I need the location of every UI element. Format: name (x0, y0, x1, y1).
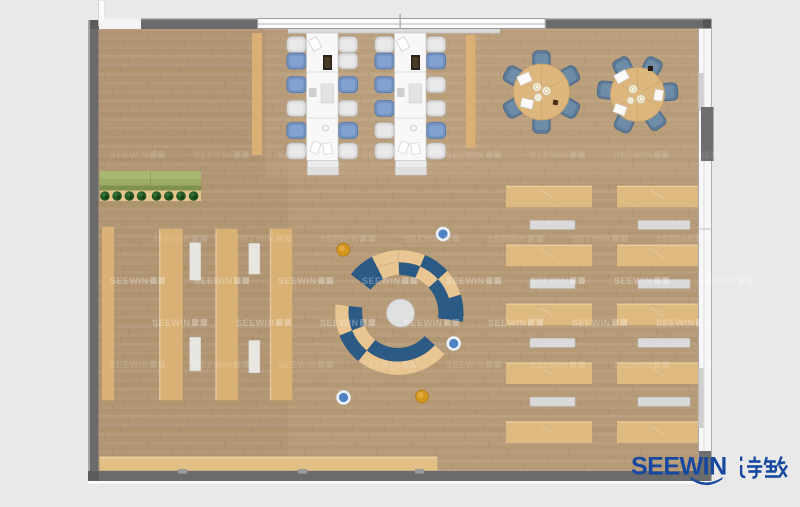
svg-text:SEEWIN: SEEWIN (110, 276, 149, 286)
svg-text:SEEWIN: SEEWIN (488, 318, 527, 328)
svg-text:SEEWIN: SEEWIN (614, 150, 653, 160)
svg-text:SEEWIN: SEEWIN (404, 318, 443, 328)
svg-text:SEEWIN: SEEWIN (698, 276, 737, 286)
svg-text:SEEWIN: SEEWIN (446, 150, 485, 160)
svg-text:SEEWIN: SEEWIN (194, 276, 233, 286)
svg-text:SEEWIN: SEEWIN (404, 234, 443, 244)
svg-text:SEEWIN: SEEWIN (530, 360, 569, 370)
svg-text:SEEWIN: SEEWIN (698, 150, 737, 160)
svg-text:SEEWIN: SEEWIN (362, 150, 401, 160)
svg-text:SEEWIN: SEEWIN (488, 234, 527, 244)
svg-text:SEEWIN: SEEWIN (572, 318, 611, 328)
svg-text:SEEWIN: SEEWIN (278, 150, 317, 160)
svg-text:SEEWIN: SEEWIN (278, 360, 317, 370)
svg-text:SEEWIN: SEEWIN (278, 276, 317, 286)
svg-text:SEEWIN: SEEWIN (530, 150, 569, 160)
svg-text:SEEWIN: SEEWIN (194, 150, 233, 160)
svg-text:SEEWIN: SEEWIN (446, 276, 485, 286)
svg-text:SEEWIN: SEEWIN (631, 453, 727, 481)
svg-text:SEEWIN: SEEWIN (698, 360, 737, 370)
svg-text:SEEWIN: SEEWIN (152, 234, 191, 244)
svg-text:SEEWIN: SEEWIN (236, 234, 275, 244)
svg-text:SEEWIN: SEEWIN (110, 150, 149, 160)
svg-text:SEEWIN: SEEWIN (656, 234, 695, 244)
svg-text:SEEWIN: SEEWIN (320, 234, 359, 244)
svg-text:SEEWIN: SEEWIN (656, 318, 695, 328)
svg-text:SEEWIN: SEEWIN (194, 360, 233, 370)
svg-text:SEEWIN: SEEWIN (614, 276, 653, 286)
svg-text:SEEWIN: SEEWIN (530, 276, 569, 286)
svg-text:SEEWIN: SEEWIN (362, 360, 401, 370)
svg-text:SEEWIN: SEEWIN (152, 318, 191, 328)
svg-text:SEEWIN: SEEWIN (362, 276, 401, 286)
svg-text:SEEWIN: SEEWIN (446, 360, 485, 370)
svg-text:SEEWIN: SEEWIN (236, 318, 275, 328)
svg-text:SEEWIN: SEEWIN (614, 360, 653, 370)
svg-text:SEEWIN: SEEWIN (572, 234, 611, 244)
svg-text:SEEWIN: SEEWIN (320, 318, 359, 328)
svg-text:SEEWIN: SEEWIN (110, 360, 149, 370)
